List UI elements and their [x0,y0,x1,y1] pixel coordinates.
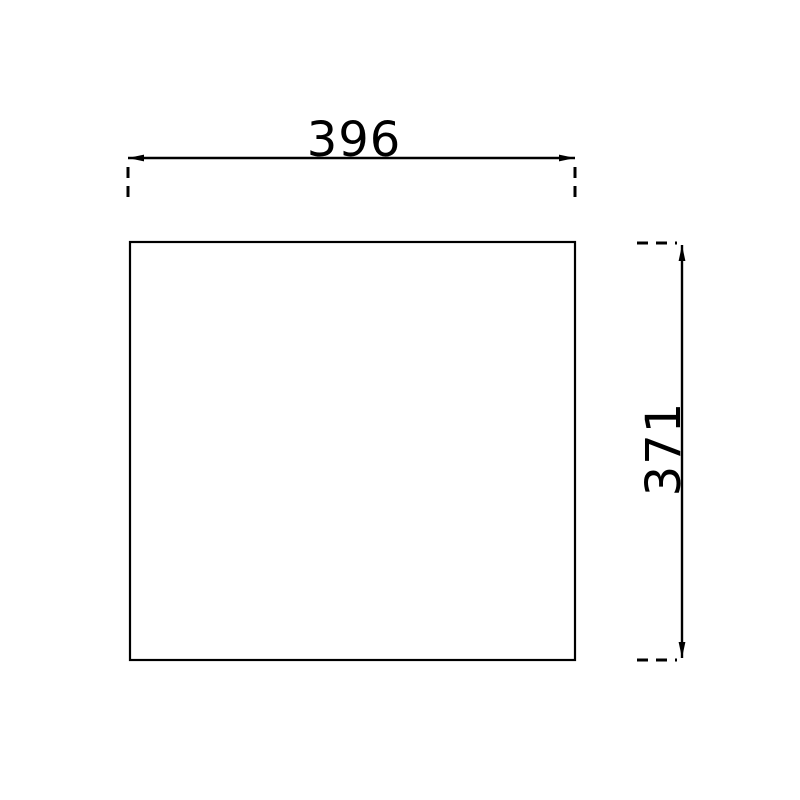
width-dimension-label: 396 [307,112,402,168]
arrow-right-icon [559,155,575,162]
height-dimension-label: 371 [636,402,692,497]
arrow-up-icon [679,245,686,261]
arrow-left-icon [128,155,144,162]
height-dimension: 371 [636,243,692,660]
width-dimension: 396 [128,112,575,204]
dimensioned-rectangle-drawing: 396 371 [0,0,800,800]
arrow-down-icon [679,642,686,658]
rectangle-outline [130,242,575,660]
drawing-canvas: 396 371 [0,0,800,800]
